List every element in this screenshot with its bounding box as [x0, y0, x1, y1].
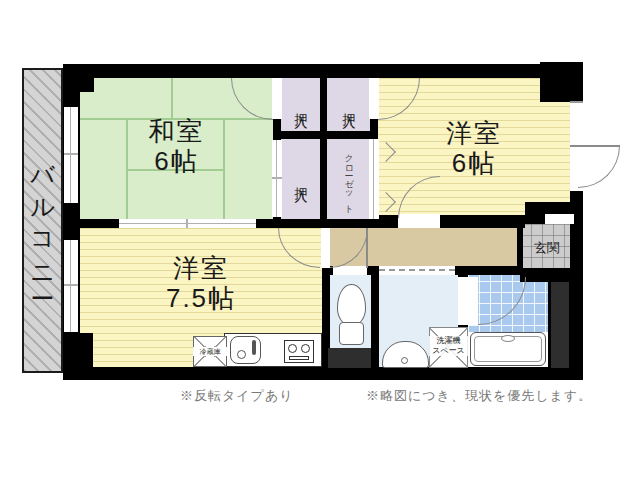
window-washitsu [64, 107, 78, 203]
toilet-bowl-icon [337, 284, 366, 326]
fridge-label: 冷蔵庫 [193, 347, 227, 356]
entrance-step [545, 214, 574, 224]
closet-line [373, 139, 374, 219]
closet-label: クローゼット [327, 139, 370, 219]
hallway-door-leaf-line [366, 228, 368, 268]
oshiire-bottom-label: 押入 [281, 139, 320, 219]
laundry-label-line1: 洗濯機 [429, 336, 468, 346]
washitsu-label: 和室 6帖 [80, 116, 273, 176]
washitsu-size: 6帖 [80, 146, 273, 176]
sink-drain-icon [237, 350, 246, 359]
window-mullion [64, 153, 78, 155]
laundry-label: 洗濯機 スペース [429, 336, 468, 356]
toilet-tank-icon [339, 322, 364, 345]
western75-name: 洋室 [80, 253, 322, 283]
entrance-door-leaf-line [570, 145, 620, 147]
western75-door-opening [321, 228, 330, 268]
kitchen-sink [230, 336, 261, 364]
wall-entrance-step-side [525, 214, 545, 224]
fusuma-handle [186, 219, 188, 228]
sliding-door-dash [379, 269, 455, 271]
western75-size: 7.5帖 [80, 283, 322, 313]
pipe-shaft-bath [551, 282, 569, 368]
note-right: ※略図につき、現状を優先します。 [366, 387, 592, 405]
washitsu-name: 和室 [80, 116, 273, 146]
grill-icon [289, 356, 309, 360]
note-left: ※反転タイプあり [180, 387, 294, 405]
faucet-icon [252, 340, 256, 355]
wall-top-left-pillar [80, 78, 94, 92]
wall-bottom [63, 367, 583, 380]
entrance-label: 玄関 [520, 239, 574, 257]
balcony-label: バルコニー [22, 68, 63, 373]
oshiire-top-right-label: 押入 [327, 78, 370, 131]
window-western6 [570, 101, 583, 149]
western6-size: 6帖 [378, 148, 570, 178]
wall-top [63, 64, 583, 78]
toilet-door-opening [333, 266, 367, 275]
window-mullion [64, 284, 78, 286]
wall-closet-divider [320, 78, 327, 219]
western6-name: 洋室 [378, 118, 570, 148]
pipe-shaft-toilet [328, 348, 371, 368]
wall-corner-pillar [540, 62, 583, 102]
western75-label: 洋室 7.5帖 [80, 253, 322, 313]
wall-above-entrance [525, 202, 574, 214]
floorplan: バルコニー [0, 0, 640, 480]
basin-drain-icon [401, 357, 408, 364]
laundry-label-line2: スペース [429, 346, 468, 356]
burner-icon [301, 344, 310, 353]
door-arc-main-entrance [578, 146, 620, 188]
tatami-line [171, 78, 173, 120]
western6-label: 洋室 6帖 [378, 118, 570, 178]
burner-icon [288, 344, 297, 353]
wall-toilet-washroom [371, 266, 379, 368]
tub-fitting-icon [501, 335, 515, 342]
window-western75 [64, 240, 78, 332]
wall-bottom-left-pillar [63, 333, 93, 380]
wall-closet-horizontal [273, 131, 378, 139]
bath-door-leaf [458, 277, 478, 325]
window-frame-line [70, 240, 71, 332]
window-frame-line [70, 107, 71, 203]
oshiire-top-left-label: 押入 [281, 78, 320, 131]
